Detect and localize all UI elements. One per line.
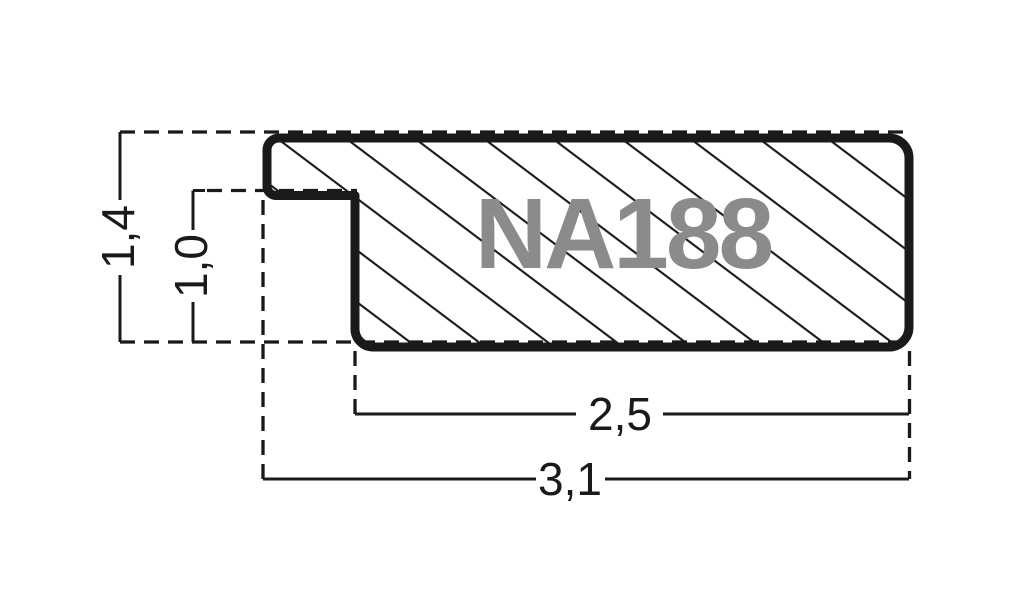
profile-code-label: NA188: [475, 178, 772, 290]
dim-label-width-total: 3,1: [538, 453, 602, 505]
moulding-profile-diagram: NA188: [0, 0, 1024, 603]
dim-label-height-inner: 1,0: [165, 234, 217, 298]
dim-label-height-total: 1,4: [92, 205, 144, 269]
dim-label-width-inner: 2,5: [588, 388, 652, 440]
